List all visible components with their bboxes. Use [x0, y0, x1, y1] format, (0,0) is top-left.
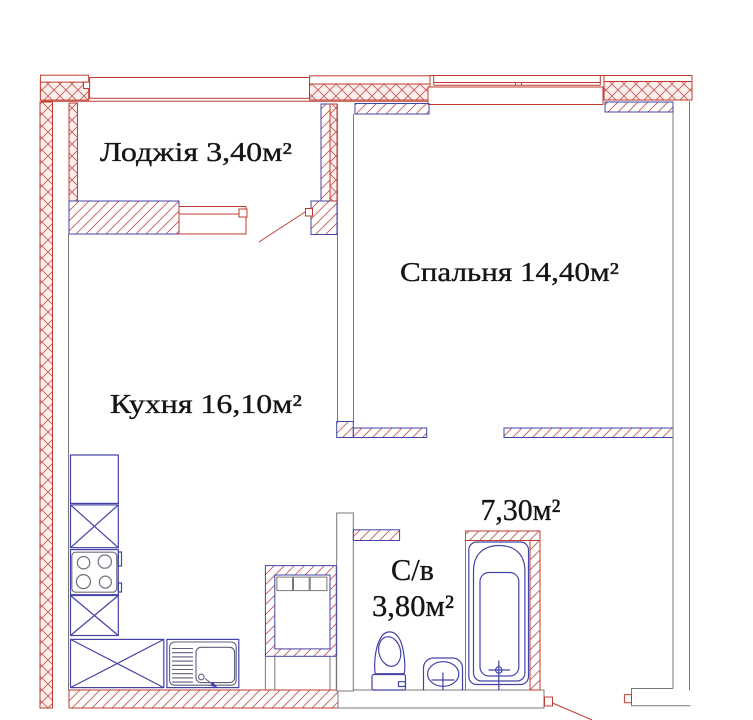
svg-text:С/в: С/в — [391, 552, 434, 587]
svg-text:Спальня 14,40м²: Спальня 14,40м² — [400, 257, 619, 287]
svg-text:Кухня 16,10м²: Кухня 16,10м² — [110, 389, 302, 419]
svg-text:3,80м²: 3,80м² — [372, 588, 454, 623]
svg-text:7,30м²: 7,30м² — [481, 492, 561, 527]
svg-text:Лоджія 3,40м²: Лоджія 3,40м² — [100, 137, 292, 167]
